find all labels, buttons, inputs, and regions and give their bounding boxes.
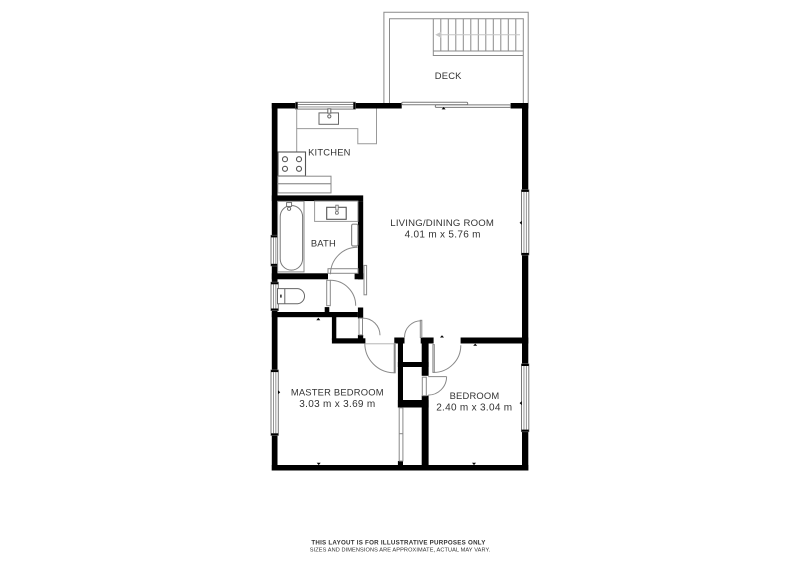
svg-text:MASTER BEDROOM: MASTER BEDROOM	[291, 387, 384, 398]
svg-text:BATH: BATH	[311, 237, 336, 248]
svg-text:SIZES AND DIMENSIONS ARE APPRO: SIZES AND DIMENSIONS ARE APPROXIMATE, AC…	[310, 548, 491, 554]
svg-text:2.40 m x 3.04 m: 2.40 m x 3.04 m	[436, 402, 512, 413]
svg-text:3.03 m x 3.69 m: 3.03 m x 3.69 m	[299, 399, 375, 410]
svg-text:BEDROOM: BEDROOM	[450, 390, 500, 401]
svg-text:DECK: DECK	[435, 70, 462, 81]
svg-text:LIVING/DINING ROOM: LIVING/DINING ROOM	[390, 218, 494, 229]
svg-text:KITCHEN: KITCHEN	[308, 146, 351, 157]
svg-text:4.01 m x 5.76 m: 4.01 m x 5.76 m	[405, 230, 481, 241]
svg-text:THIS LAYOUT IS FOR ILLUSTRATIV: THIS LAYOUT IS FOR ILLUSTRATIVE PURPOSES…	[311, 540, 486, 547]
